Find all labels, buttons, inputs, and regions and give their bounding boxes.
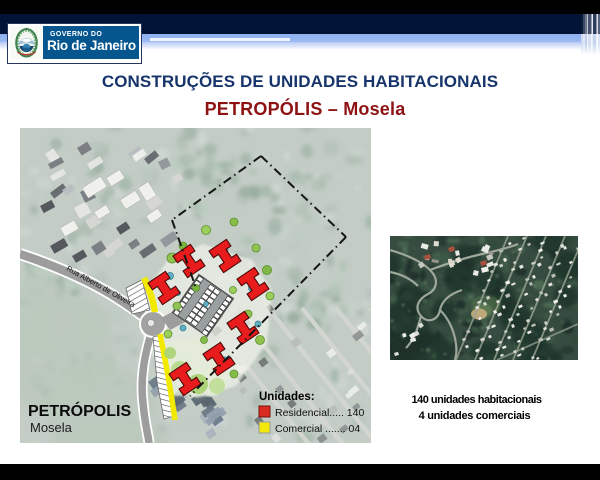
svg-text:Mosela: Mosela: [30, 420, 73, 435]
svg-text:Residencial..... 140: Residencial..... 140: [275, 407, 364, 419]
svg-text:PETRÓPOLIS: PETRÓPOLIS: [28, 401, 131, 420]
svg-text:Comercial ....... 04: Comercial ....... 04: [275, 423, 360, 435]
svg-text:Unidades:: Unidades:: [259, 391, 315, 403]
